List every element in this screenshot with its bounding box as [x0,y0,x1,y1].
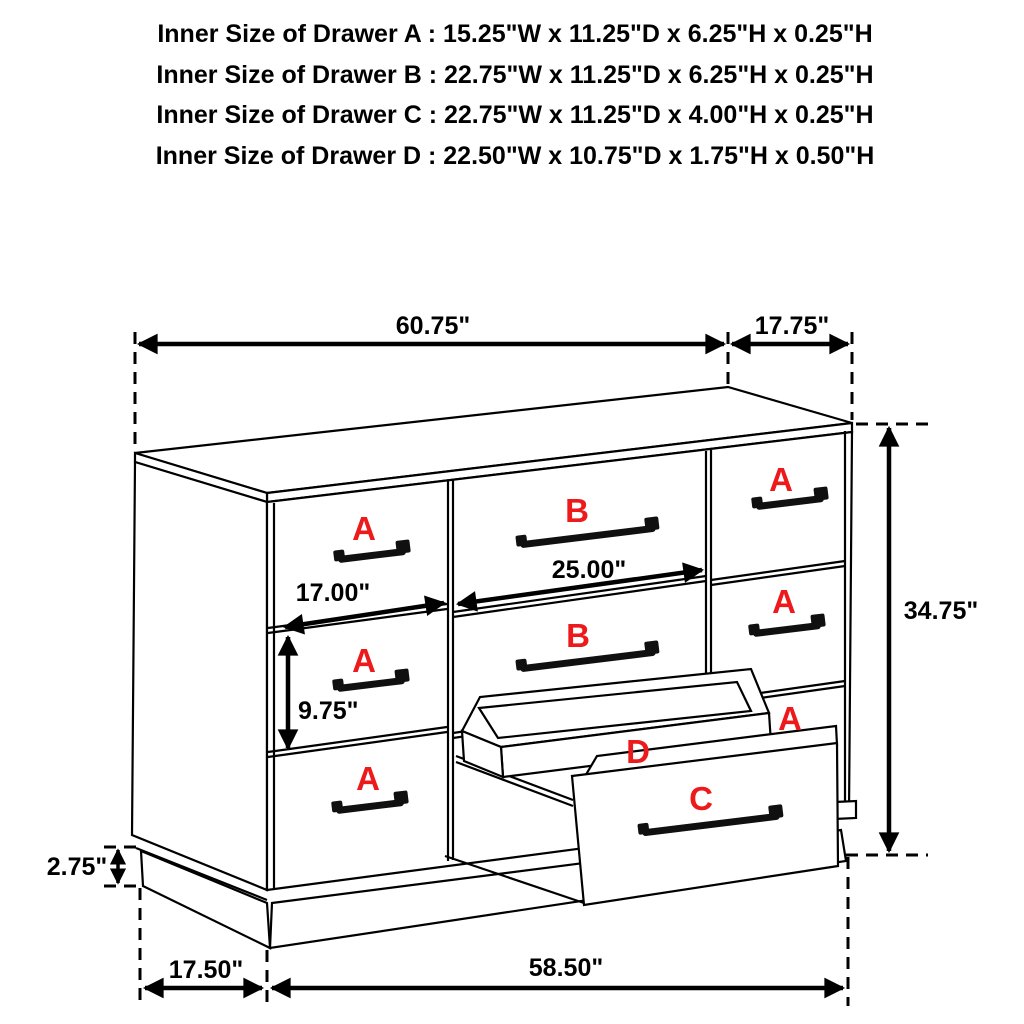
spec-line-a: Inner Size of Drawer A : 15.25"W x 11.25… [157,20,872,48]
cabinet-left-side [132,462,270,948]
spec-line-d: Inner Size of Drawer D : 22.50"W x 10.75… [156,142,875,170]
dim-base-height: 2.75" [47,847,142,886]
spec-line-c: Inner Size of Drawer C : 22.75"W x 11.25… [156,101,873,129]
label-drawer-c: C [689,780,713,817]
dim-base-side-depth-label: 17.50" [169,956,243,984]
label-drawer-b-top: B [565,492,589,529]
label-drawer-a-right-bottom: A [778,700,802,737]
dim-overall-height-label: 34.75" [904,597,978,625]
dim-overall-height: 34.75" [846,424,978,855]
label-drawer-a-left-middle: A [352,642,376,679]
label-drawer-d: D [626,733,650,770]
dim-base-front-width-label: 58.50" [529,954,603,982]
diagram-svg: Inner Size of Drawer A : 15.25"W x 11.25… [0,0,1024,1024]
label-drawer-a-right-middle: A [772,583,796,620]
dim-drawer-front-height-label: 9.75" [298,697,359,725]
dresser-dimension-diagram: Inner Size of Drawer A : 15.25"W x 11.25… [0,0,1024,1024]
spec-title: Inner Size of Drawer A : 15.25"W x 11.25… [156,20,875,170]
label-drawer-b-second: B [566,617,590,654]
label-drawer-a-left-top: A [352,510,376,547]
dim-top-width-label: 60.75" [396,312,470,340]
label-drawer-a-left-bottom: A [356,760,380,797]
label-drawer-a-right-top: A [769,461,793,498]
dim-top-depth-label: 17.75" [755,312,829,340]
dim-base-height-label: 2.75" [47,853,108,881]
spec-line-b: Inner Size of Drawer B : 22.75"W x 11.25… [156,61,873,89]
dim-left-drawer-width-label: 17.00" [296,579,370,607]
dim-middle-drawer-width-label: 25.00" [552,556,626,584]
